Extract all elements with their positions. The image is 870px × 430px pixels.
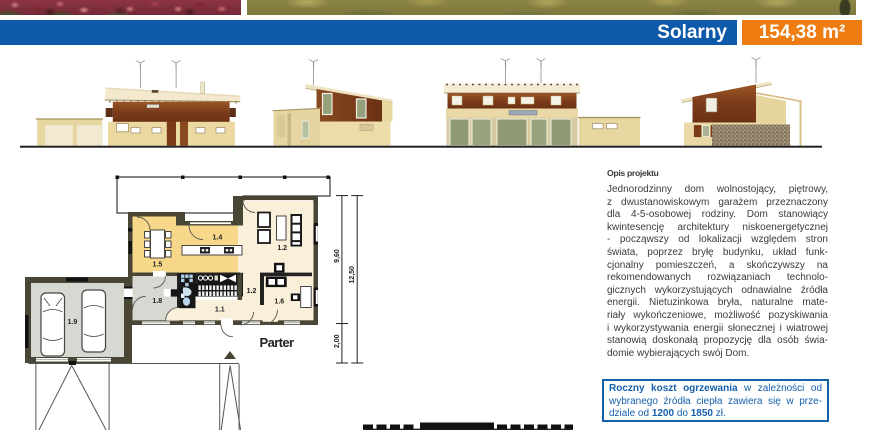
- svg-text:2,00: 2,00: [334, 334, 341, 348]
- svg-text:1.6: 1.6: [274, 299, 284, 306]
- svg-text:1.4: 1.4: [213, 235, 223, 242]
- svg-text:1.9: 1.9: [68, 319, 78, 326]
- svg-text:1.2: 1.2: [277, 245, 287, 252]
- svg-text:9,60: 9,60: [334, 249, 341, 263]
- svg-text:1.2: 1.2: [247, 288, 257, 295]
- svg-text:1.8: 1.8: [152, 298, 162, 305]
- svg-text:12,50: 12,50: [349, 266, 356, 284]
- svg-text:1.1: 1.1: [215, 307, 225, 314]
- svg-text:Parter: Parter: [260, 335, 295, 350]
- svg-text:1.5: 1.5: [153, 262, 163, 269]
